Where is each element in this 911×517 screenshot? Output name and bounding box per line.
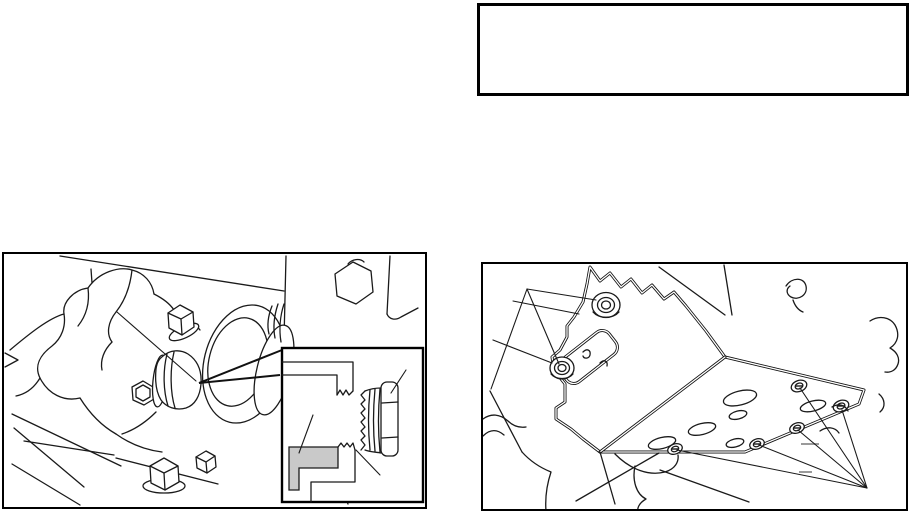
side-bolt <box>132 381 154 405</box>
figure-skid-plate <box>481 262 908 511</box>
plug-head <box>381 382 398 456</box>
bottom-bolts <box>143 451 216 493</box>
page-canvas <box>0 0 911 517</box>
flange-bolt-a <box>592 293 620 318</box>
figure-drain-plug <box>2 252 427 509</box>
drain-plug <box>150 351 201 409</box>
note-box <box>477 3 909 96</box>
flange-bolt-b <box>550 357 574 379</box>
plug-cross-section-inset <box>282 348 423 502</box>
drain-plug-illustration <box>4 254 425 507</box>
frame-rail-lines <box>12 414 218 505</box>
upper-bolt <box>167 305 201 344</box>
skid-plate-illustration <box>483 264 906 509</box>
